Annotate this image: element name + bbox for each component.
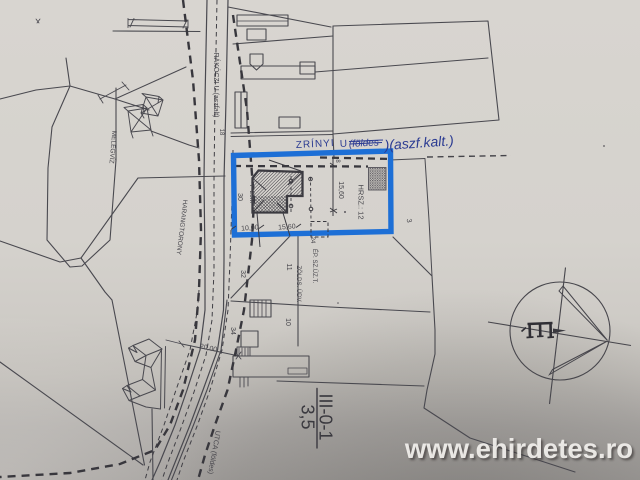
svg-text:10: 10 [284, 318, 291, 326]
svg-text:24: 24 [309, 237, 315, 244]
svg-text:34: 34 [229, 327, 236, 335]
svg-text:RÁKÓCZI U (aszfalt): RÁKÓCZI U (aszfalt) [212, 53, 221, 118]
svg-text:18: 18 [218, 129, 224, 136]
svg-text:III-0-1: III-0-1 [316, 393, 336, 440]
svg-text:U: U [340, 139, 348, 150]
svg-text:HRSZ.: 12: HRSZ.: 12 [357, 184, 366, 219]
svg-text:32: 32 [239, 270, 246, 278]
svg-text:www.ehirdetes.ro: www.ehirdetes.ro [404, 433, 633, 464]
svg-text:30: 30 [236, 193, 243, 201]
svg-text:P 29M: P 29M [248, 185, 255, 204]
svg-text:11: 11 [285, 263, 292, 270]
svg-text:15,60: 15,60 [278, 223, 296, 231]
svg-text:ZÖLDS. ÜDV.: ZÖLDS. ÜDV. [295, 265, 302, 302]
svg-text:10,00: 10,00 [241, 224, 259, 232]
svg-text:15,60: 15,60 [337, 181, 344, 199]
svg-text:3,5: 3,5 [298, 404, 318, 429]
svg-text:ÉP. SZ.ÜZ.T.: ÉP. SZ.ÜZ.T. [311, 249, 318, 284]
